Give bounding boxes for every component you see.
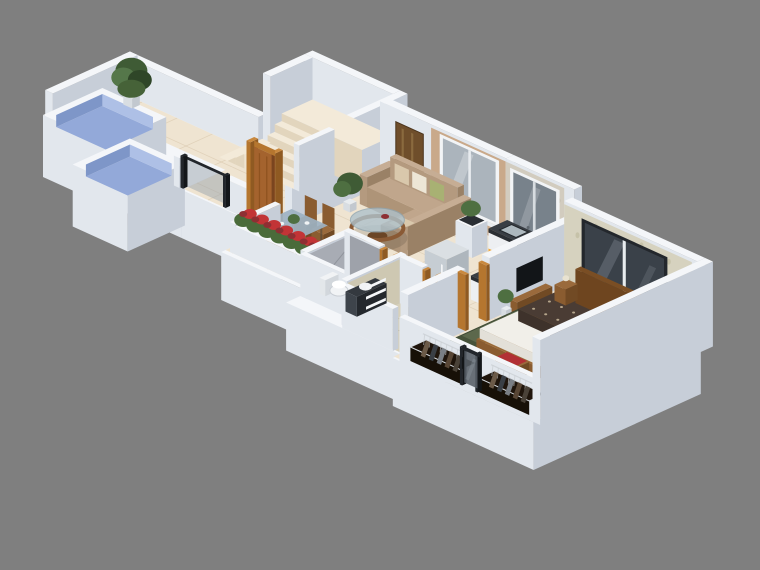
railing-post <box>460 347 462 386</box>
faucet <box>527 226 530 229</box>
duvet-dot <box>556 319 559 321</box>
duvet-dot <box>560 306 563 308</box>
planter-flowers <box>239 211 247 217</box>
plate <box>305 221 310 225</box>
potted-plant <box>117 80 145 98</box>
planter-flowers <box>276 228 284 234</box>
potted-plant <box>461 201 481 217</box>
railing-post <box>478 353 482 393</box>
toilet-tank <box>320 278 326 297</box>
railing-post <box>181 156 184 189</box>
planter-flowers <box>300 239 308 245</box>
railing-post <box>223 175 226 208</box>
toilet-seat <box>332 281 346 289</box>
stair-balustrade <box>294 143 300 192</box>
door-jamb <box>479 262 487 322</box>
bathroom-wall <box>393 307 399 352</box>
duvet-dot <box>548 301 551 303</box>
potted-plant <box>498 289 514 303</box>
table-decor <box>381 214 389 219</box>
parapet <box>174 156 180 189</box>
door-jamb <box>486 264 489 322</box>
bedroom-end-wall <box>533 337 541 426</box>
duvet-dot <box>532 308 535 310</box>
floor-plan-render <box>0 0 760 570</box>
door-jamb <box>458 272 466 332</box>
railing-post <box>226 174 230 208</box>
wallpaper-leaf <box>576 232 580 238</box>
planter-flowers <box>263 222 271 228</box>
door-grain <box>259 153 260 218</box>
planter-flowers <box>251 217 259 223</box>
coffee-table-glass <box>350 208 404 232</box>
duvet-dot <box>544 313 547 315</box>
lamp <box>562 275 569 281</box>
door-jamb <box>247 141 251 221</box>
planter-flowers <box>288 233 296 239</box>
centerpiece-plant <box>288 214 300 224</box>
parapet <box>230 222 236 255</box>
floor-plan-stage <box>0 0 760 570</box>
potted-plant <box>333 181 351 197</box>
duvet-dot <box>572 312 575 314</box>
railing-post <box>183 155 187 189</box>
door-jamb <box>465 274 468 332</box>
